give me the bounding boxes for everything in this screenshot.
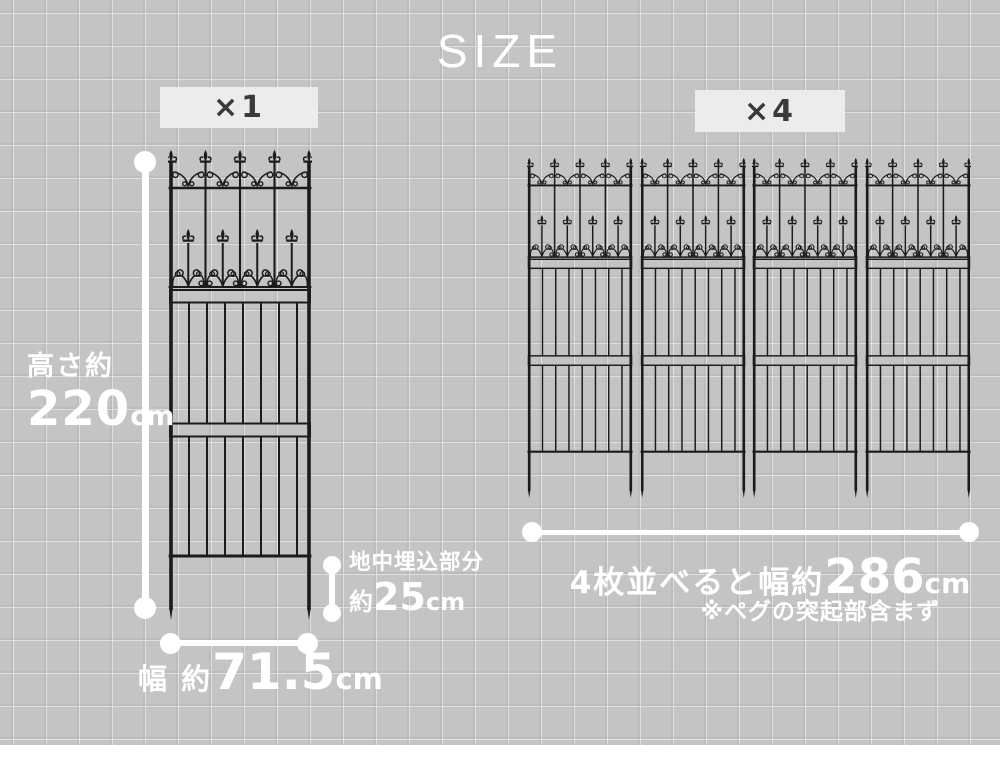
- height-unit: cm: [130, 401, 174, 432]
- height-dimension-dot-bottom: [134, 597, 156, 619]
- buried-depth-value: 25: [373, 575, 426, 619]
- single-width-dimension-label: 幅 約71.5cm: [138, 644, 342, 702]
- single-width-unit: cm: [335, 662, 382, 696]
- size-diagram: SIZE ×1 ×4 高さ約 220cm 幅 約71.5cm 地中埋込部分 約2…: [0, 0, 1000, 760]
- height-dimension-label: 高さ約 220cm: [27, 351, 174, 437]
- fence-panel-group-illustration-1: [527, 158, 633, 498]
- single-width-value: 71.5: [212, 643, 335, 701]
- buried-depth-prefix: 約: [349, 588, 373, 616]
- buried-depth-dimension-dot-bottom: [323, 604, 341, 622]
- buried-depth-dimension-dot-top: [323, 556, 341, 574]
- buried-depth-unit: cm: [426, 588, 465, 616]
- height-label-text: 高さ約: [27, 351, 174, 382]
- fence-panel-group-illustration-4: [865, 158, 971, 498]
- bottom-white-band: [0, 745, 1000, 760]
- height-dimension-dot-top: [134, 151, 156, 173]
- group-width-dimension-dot-left: [522, 522, 542, 542]
- height-value: 220: [27, 381, 130, 437]
- group-width-dimension-line: [532, 530, 969, 535]
- group-width-value: 286: [824, 549, 924, 605]
- group-count-badge: ×4: [695, 90, 845, 132]
- buried-depth-value-line: 約25cm: [349, 576, 484, 620]
- fence-panel-group-illustration-3: [752, 158, 858, 498]
- buried-depth-label: 地中埋込部分 約25cm: [349, 551, 484, 619]
- fence-panel-single-illustration: [168, 150, 312, 620]
- fence-panel-group-illustration-2: [640, 158, 746, 498]
- group-width-dimension-dot-right: [959, 522, 979, 542]
- single-width-label-text: 幅 約: [138, 662, 212, 696]
- group-width-unit: cm: [925, 567, 971, 600]
- height-value-line: 220cm: [27, 382, 174, 437]
- group-width-label-text: 4枚並べると幅約: [570, 565, 825, 601]
- buried-depth-label-text: 地中埋込部分: [349, 551, 484, 576]
- single-count-badge: ×1: [160, 87, 318, 128]
- group-width-dimension-label: 4枚並べると幅約286cm: [540, 550, 1000, 605]
- group-width-note: ※ペグの突起部含まず: [640, 599, 940, 625]
- page-title: SIZE: [0, 24, 1000, 78]
